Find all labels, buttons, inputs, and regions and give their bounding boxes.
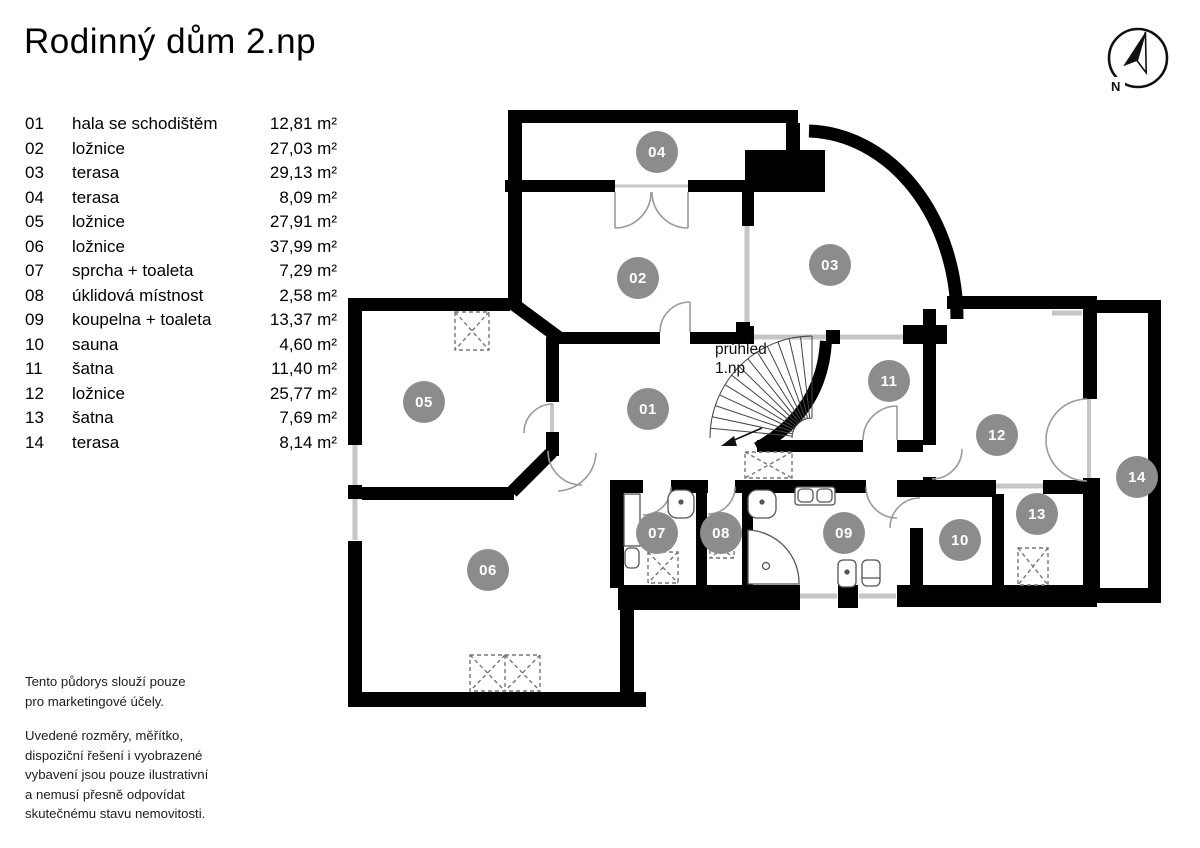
room-badge-10: 10 bbox=[939, 519, 981, 561]
doors-layer bbox=[524, 192, 1087, 528]
room-badge-06: 06 bbox=[467, 549, 509, 591]
room-badge-12: 12 bbox=[976, 414, 1018, 456]
room-badge-05: 05 bbox=[403, 381, 445, 423]
floor-plan-drawing bbox=[0, 0, 1200, 848]
room-badge-01: 01 bbox=[627, 388, 669, 430]
compass-north-label: N bbox=[1111, 79, 1120, 94]
walls-layer bbox=[348, 110, 1161, 707]
stair-direction-arrow bbox=[721, 436, 737, 446]
overlook-label: průhled 1.np bbox=[715, 340, 767, 378]
compass-needle bbox=[1123, 29, 1157, 73]
room-badge-09: 09 bbox=[823, 512, 865, 554]
room-badge-14: 14 bbox=[1116, 456, 1158, 498]
room-badge-02: 02 bbox=[617, 257, 659, 299]
room-badge-07: 07 bbox=[636, 512, 678, 554]
room-badge-03: 03 bbox=[809, 244, 851, 286]
room-badge-04: 04 bbox=[636, 131, 678, 173]
room-badge-11: 11 bbox=[868, 360, 910, 402]
room-badge-13: 13 bbox=[1016, 493, 1058, 535]
room-badge-08: 08 bbox=[700, 512, 742, 554]
compass-icon: N bbox=[1100, 20, 1176, 96]
